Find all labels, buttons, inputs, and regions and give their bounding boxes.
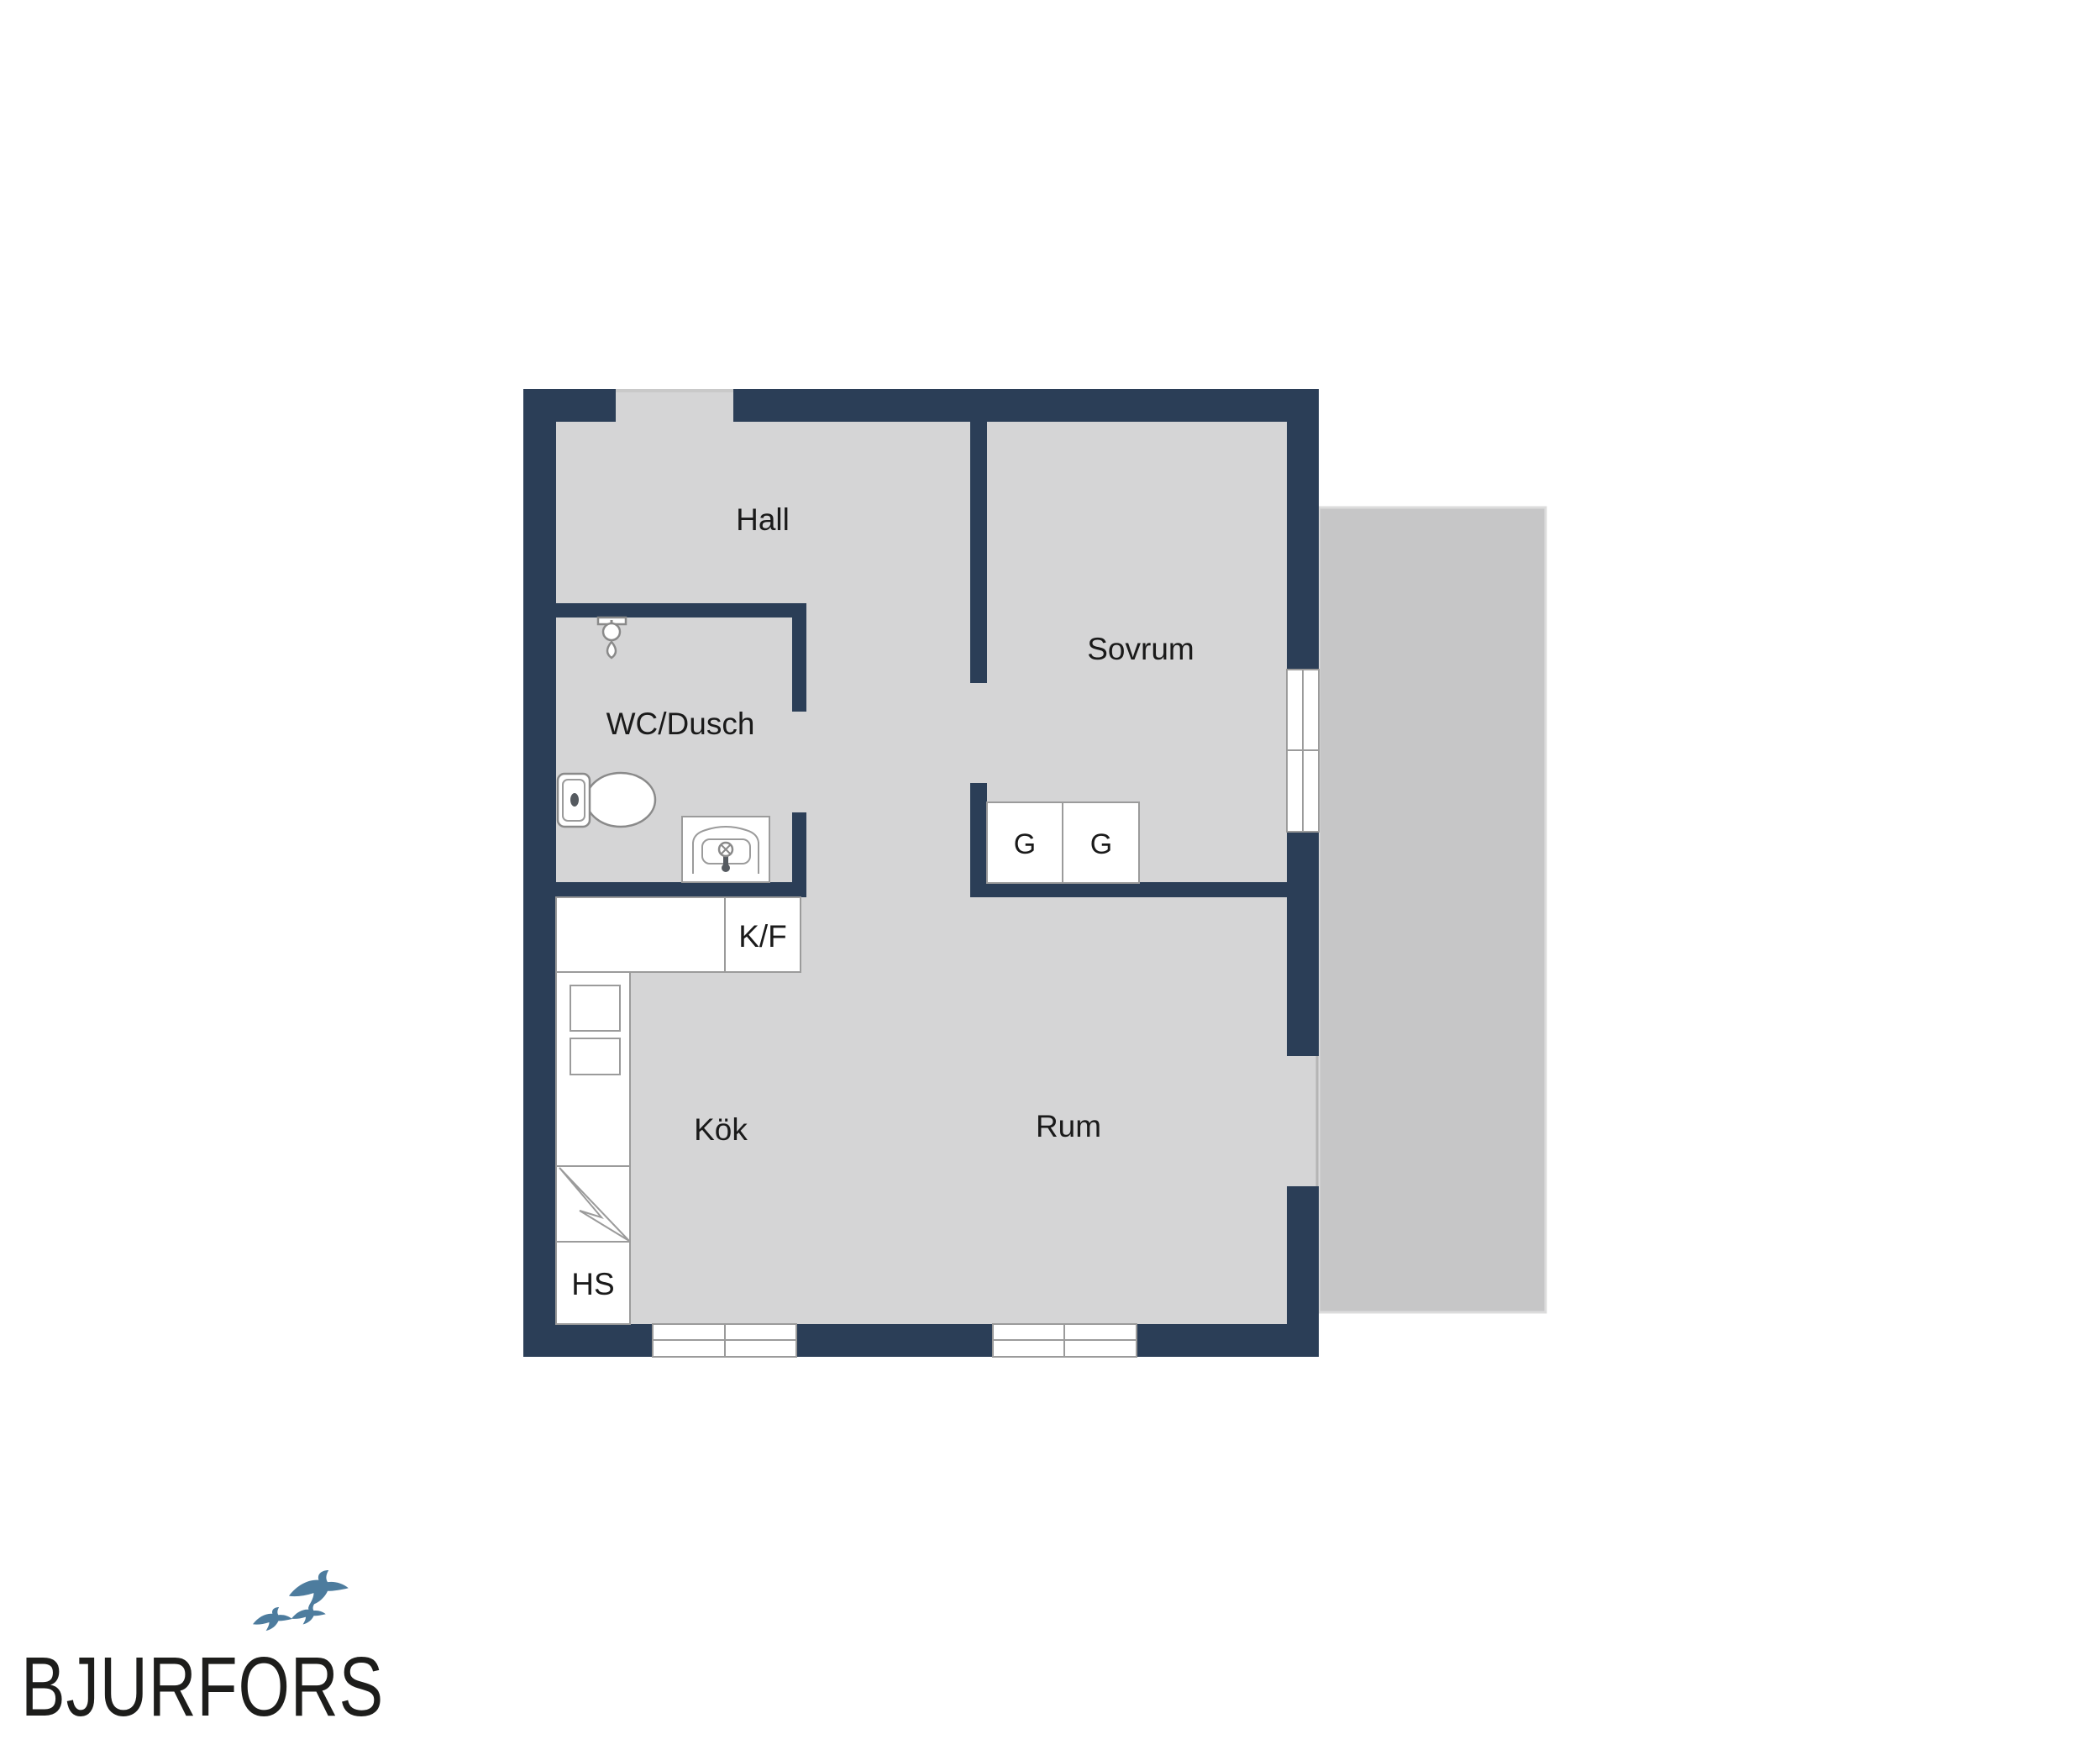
room-label-rum: Rum [1036,1109,1101,1143]
apartment-floor [556,422,1287,1324]
wall-hall-wc [556,603,806,617]
wall-right [1287,389,1319,1357]
window-rum-icon [993,1324,1137,1357]
balcony-area [1319,507,1546,1312]
floor-area [556,422,1287,1324]
fixture-label-g2: G [1090,828,1112,860]
sink-icon [682,817,769,882]
toilet-icon [558,773,655,827]
window-sovrum-icon [1287,670,1319,832]
fixture-label-hs: HS [571,1267,614,1301]
wall-left [523,389,556,1357]
wardrobes [987,802,1139,883]
floorplan-canvas: Hall Sovrum WC/Dusch Kök Rum K/F G G HS … [0,0,2100,1750]
room-label-hall: Hall [736,502,790,537]
floorplan-page: Hall Sovrum WC/Dusch Kök Rum K/F G G HS … [0,0,2100,1750]
logo-wordmark: BJURFORS [21,1640,384,1734]
sink-unit-icon [570,985,620,1031]
brand-logo: BJURFORS [21,1570,384,1734]
entrance-door-opening [616,389,733,422]
wall-hall-sovrum [970,422,987,683]
room-label-kok: Kök [694,1112,748,1147]
room-label-sovrum: Sovrum [1087,632,1194,666]
fixture-label-kf: K/F [738,919,787,954]
wall-wc-bottom [556,882,806,897]
fixture-label-g1: G [1014,828,1036,860]
balcony-door-opening [1287,1056,1319,1186]
stove-unit-icon [570,1038,620,1075]
wall-hall-sovrum-stub [970,783,987,884]
birds-icon [253,1570,349,1631]
wall-bottom [523,1324,1319,1357]
wall-sovrum-rum [970,882,1287,897]
window-kok-icon [653,1324,796,1357]
room-label-wc-dusch: WC/Dusch [606,707,755,741]
wall-wc-stub-upper [792,617,806,712]
